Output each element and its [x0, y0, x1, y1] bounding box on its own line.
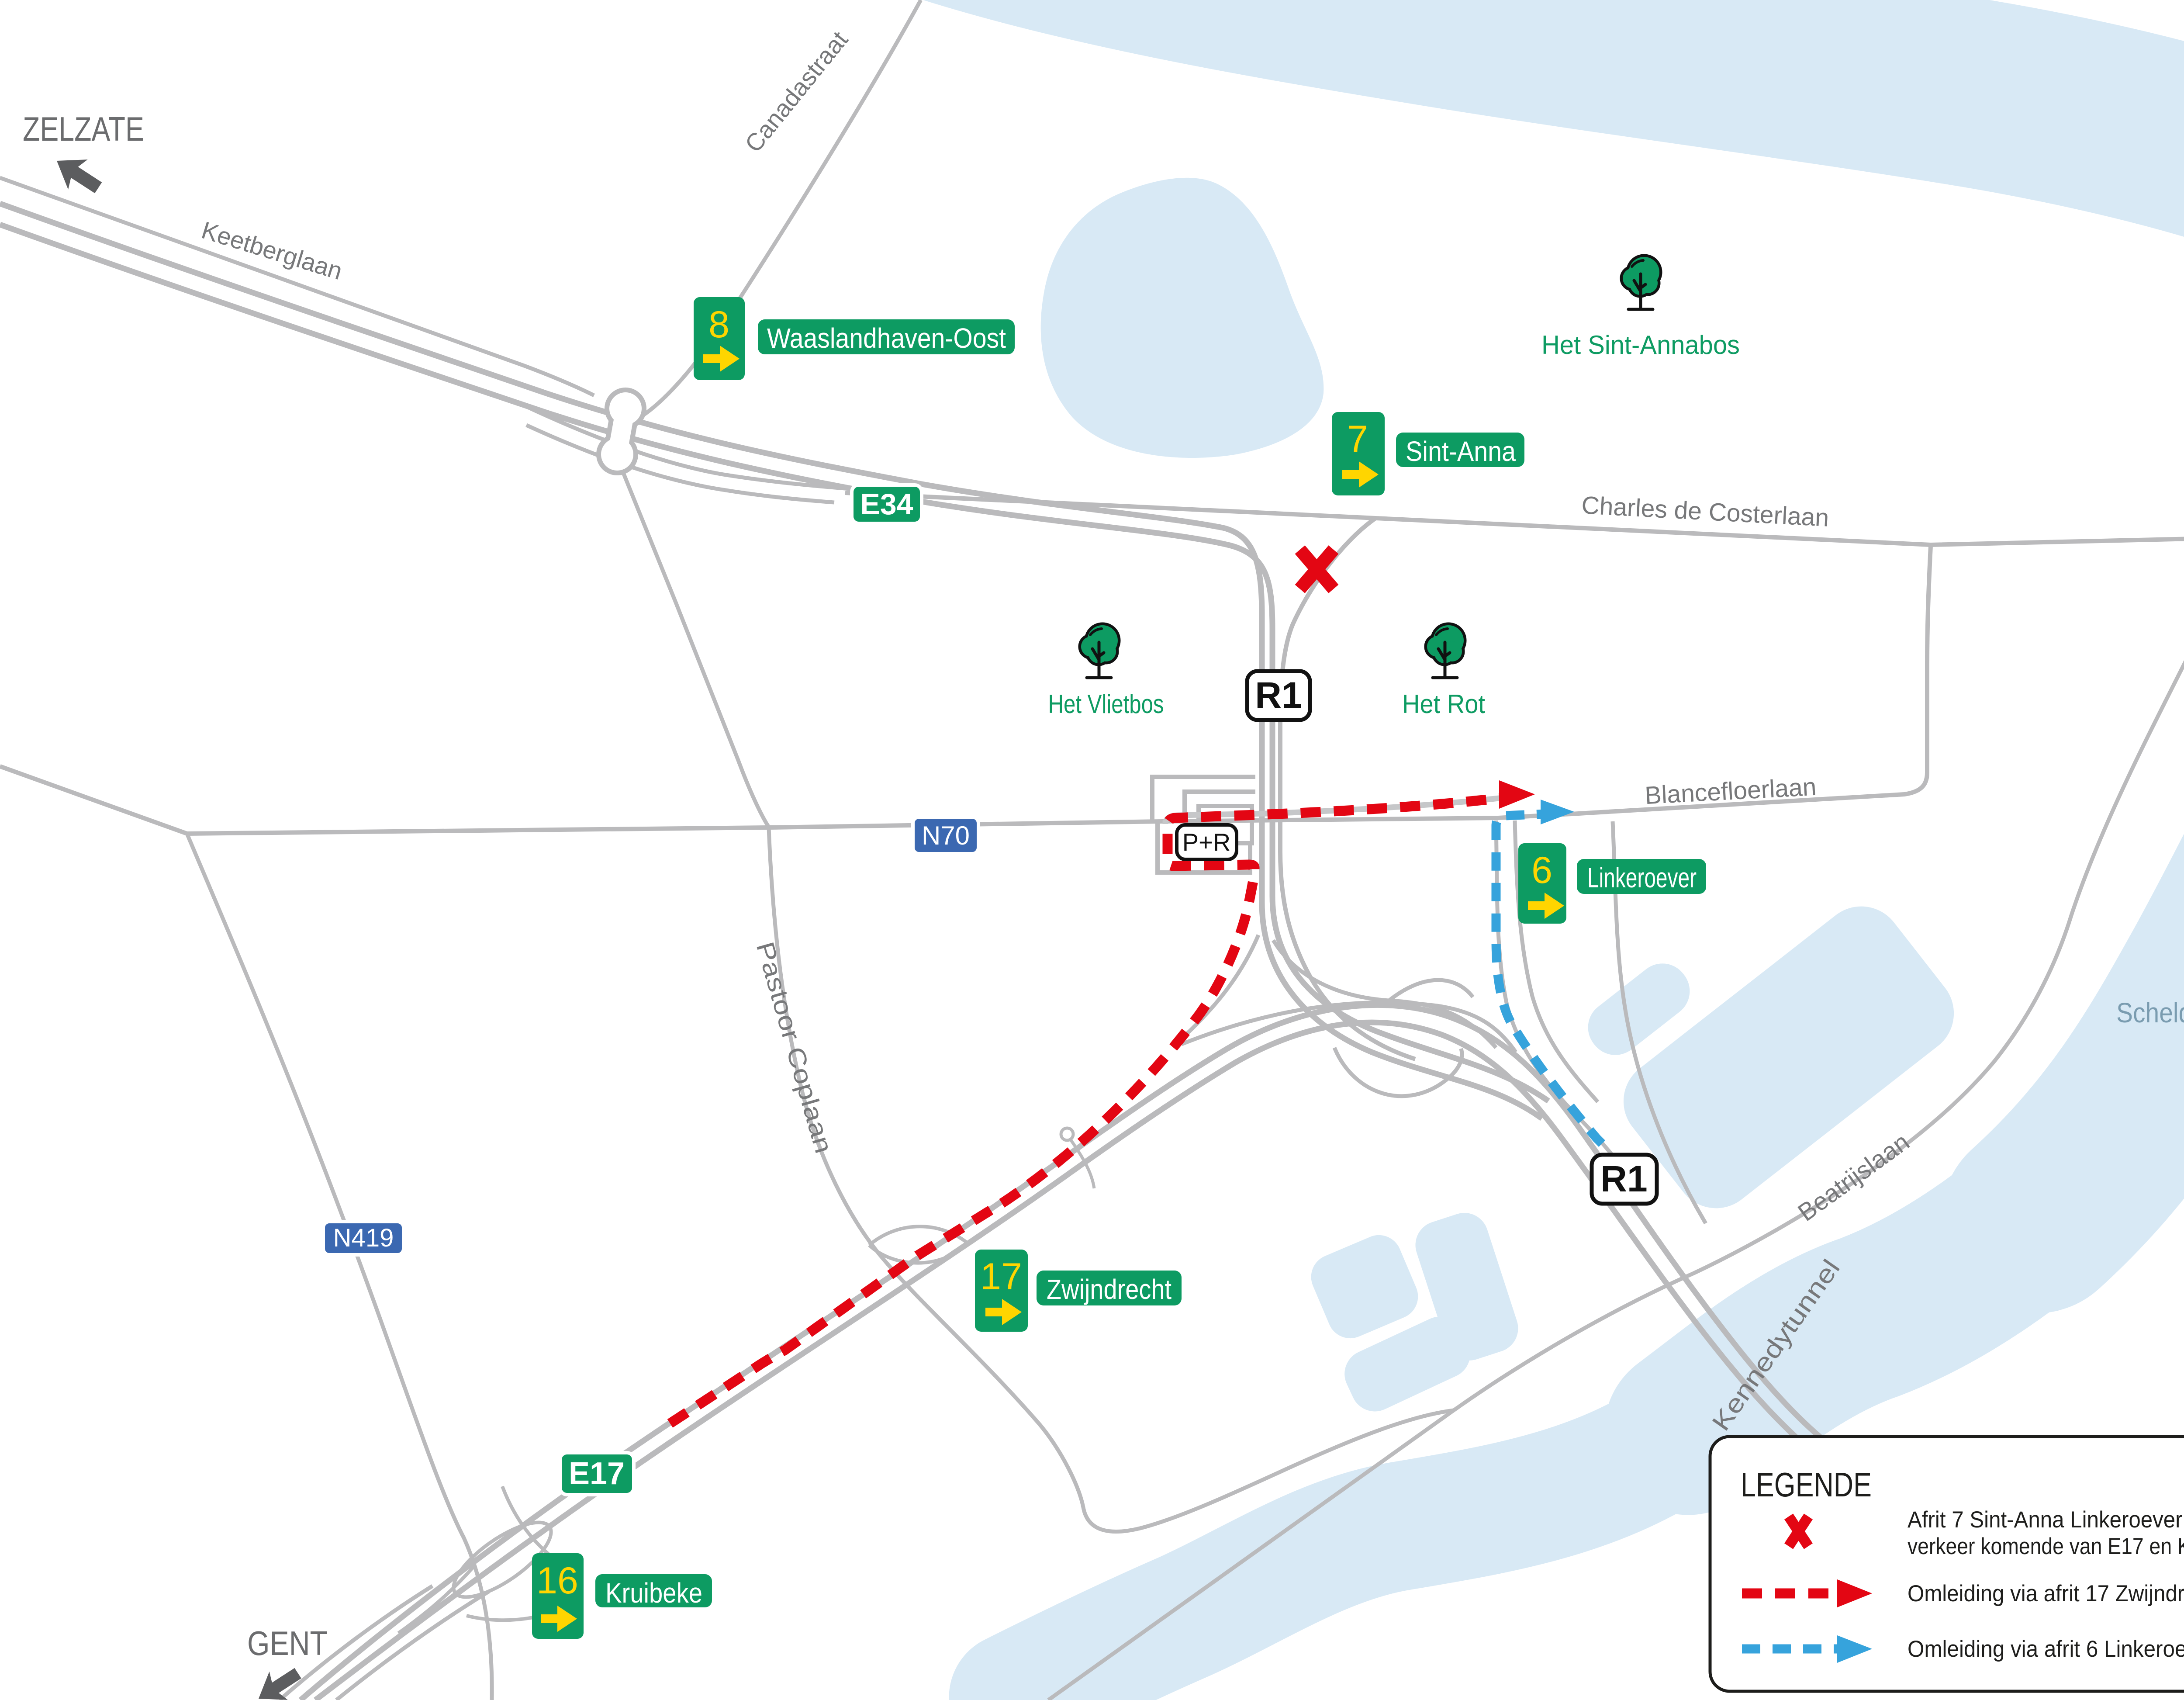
svg-text:Het Sint-Annabos: Het Sint-Annabos: [1541, 330, 1740, 360]
svg-text:Omleiding via afrit 17 Zwijndr: Omleiding via afrit 17 Zwijndrecht en ve…: [1908, 1581, 2184, 1607]
svg-text:Linkeroever: Linkeroever: [1587, 862, 1697, 893]
svg-text:Waaslandhaven-Oost: Waaslandhaven-Oost: [767, 322, 1006, 354]
svg-text:N70: N70: [922, 821, 970, 850]
svg-text:verkeer komende van E17 en Ken: verkeer komende van E17 en Kennedytunnel: [1908, 1534, 2184, 1559]
svg-text:Afrit 7 Sint-Anna Linkeroever: Afrit 7 Sint-Anna Linkeroever afgesloten…: [1908, 1507, 2184, 1533]
svg-text:6: 6: [1531, 849, 1552, 891]
svg-text:Schelde: Schelde: [2116, 997, 2184, 1028]
svg-text:ZELZATE: ZELZATE: [23, 110, 144, 148]
svg-text:Kruibeke: Kruibeke: [605, 1577, 702, 1609]
svg-text:R1: R1: [1600, 1158, 1647, 1199]
svg-text:Zwijndrecht: Zwijndrecht: [1047, 1274, 1171, 1305]
svg-text:Omleiding via afrit 6 Linkeroe: Omleiding via afrit 6 Linkeroever: [1908, 1636, 2184, 1662]
svg-text:17: 17: [980, 1256, 1022, 1298]
svg-text:8: 8: [708, 304, 729, 346]
svg-text:GENT: GENT: [247, 1624, 328, 1662]
svg-text:R1: R1: [1255, 675, 1302, 716]
svg-text:E34: E34: [860, 488, 913, 521]
svg-text:LEGENDE: LEGENDE: [1741, 1465, 1872, 1504]
svg-text:E17: E17: [569, 1456, 625, 1491]
svg-text:N419: N419: [333, 1224, 394, 1252]
svg-text:Het Vlietbos: Het Vlietbos: [1048, 689, 1164, 719]
svg-text:Sint-Anna: Sint-Anna: [1406, 436, 1516, 467]
svg-text:7: 7: [1347, 418, 1368, 460]
svg-text:Het Rot: Het Rot: [1402, 689, 1485, 719]
svg-text:16: 16: [536, 1560, 578, 1602]
svg-text:P+R: P+R: [1182, 828, 1231, 856]
